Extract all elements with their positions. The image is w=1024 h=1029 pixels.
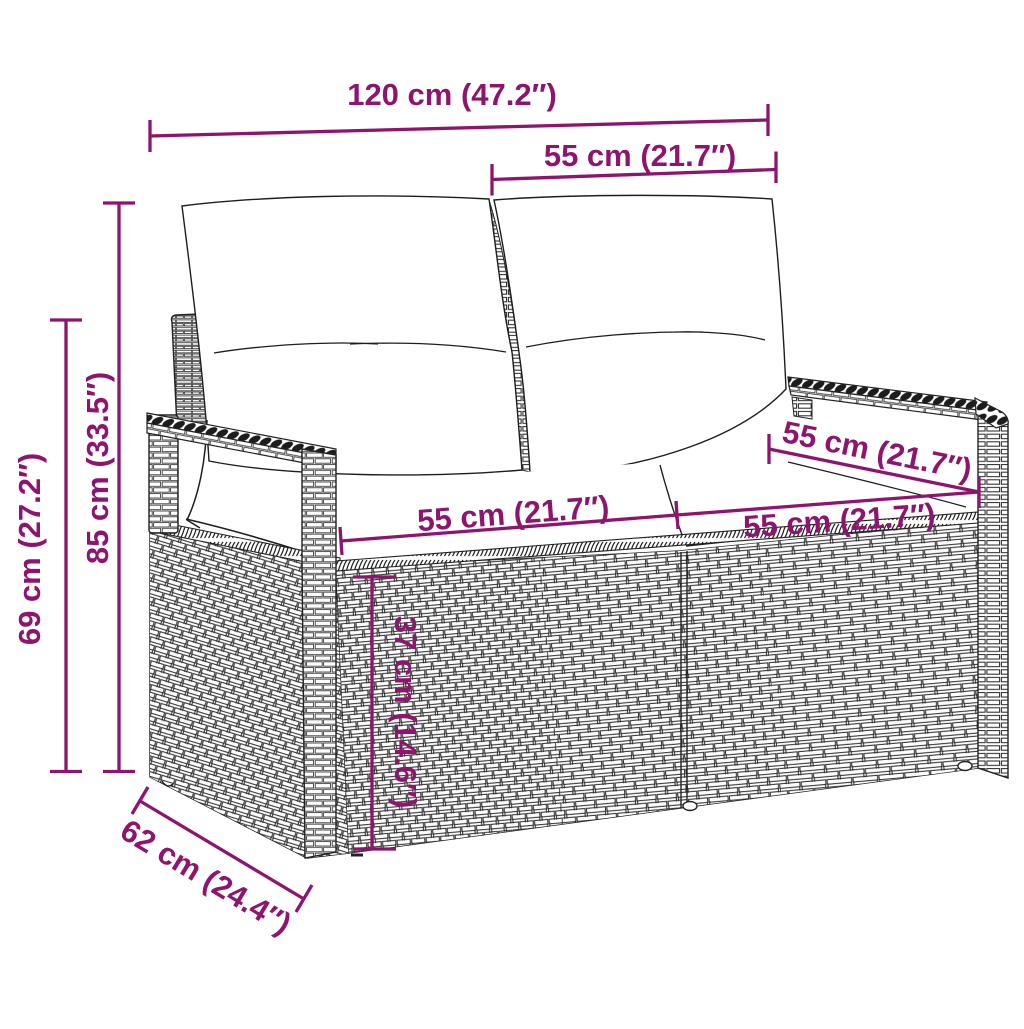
svg-text:69 cm (27.2″): 69 cm (27.2″) <box>12 453 47 645</box>
svg-text:37 cm (14.6″): 37 cm (14.6″) <box>388 616 423 808</box>
svg-text:85 cm (33.5″): 85 cm (33.5″) <box>80 372 115 564</box>
svg-text:120 cm (47.2″): 120 cm (47.2″) <box>347 77 557 112</box>
svg-text:55 cm (21.7″): 55 cm (21.7″) <box>544 138 736 173</box>
